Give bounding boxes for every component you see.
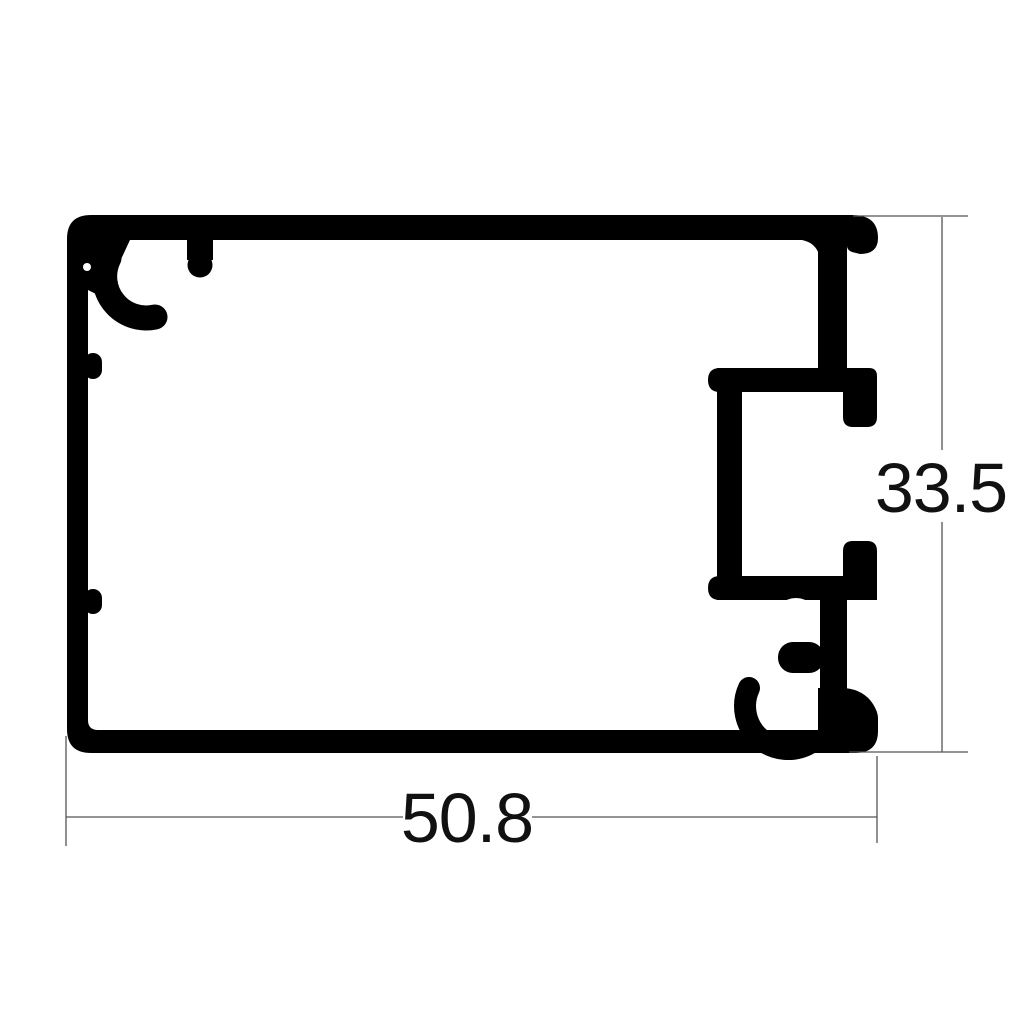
boss-bottom-jaw-bump — [778, 642, 824, 673]
left-wall-nub-lower — [84, 589, 102, 614]
height-dimension-label: 33.5 — [875, 449, 1007, 527]
profile-drawing: 50.8 33.5 — [0, 0, 1024, 1024]
left-wall-nub-upper — [84, 353, 102, 379]
corner-relief-dot — [83, 263, 91, 271]
screw-boss-bottom-right — [745, 688, 810, 749]
dimension-annotations: 50.8 33.5 — [66, 216, 1007, 857]
c-channel-left-wall — [717, 368, 742, 600]
bottom-right-corner — [818, 688, 878, 753]
profile-body — [67, 215, 878, 753]
lower-wall-notch — [774, 598, 818, 642]
top-wall-fillet — [802, 240, 820, 258]
drawing-canvas: 50.8 33.5 — [0, 0, 1024, 1024]
width-dimension-label: 50.8 — [401, 779, 533, 857]
boss-top-jaw-tip — [188, 253, 213, 278]
right-wall-upper — [818, 238, 847, 381]
